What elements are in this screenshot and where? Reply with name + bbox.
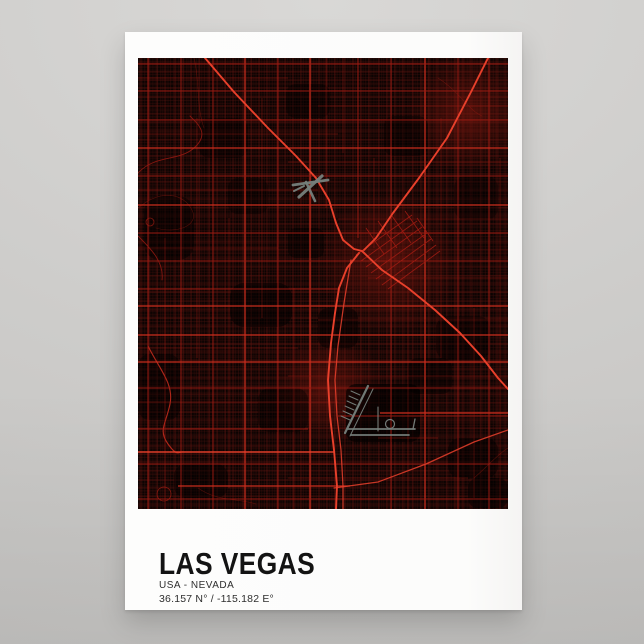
poster-caption: LAS VEGAS USA - NEVADA 36.157 N° / -115.… bbox=[159, 551, 343, 605]
poster-subtitle: USA - NEVADA bbox=[159, 580, 343, 591]
poster-title: LAS VEGAS bbox=[159, 551, 315, 577]
poster-coordinates: 36.157 N° / -115.182 E° bbox=[159, 593, 343, 605]
map-frame bbox=[138, 58, 508, 509]
map-poster: LAS VEGAS USA - NEVADA 36.157 N° / -115.… bbox=[125, 32, 522, 610]
scene-background: LAS VEGAS USA - NEVADA 36.157 N° / -115.… bbox=[0, 0, 644, 644]
las-vegas-map-graphic bbox=[138, 58, 508, 509]
